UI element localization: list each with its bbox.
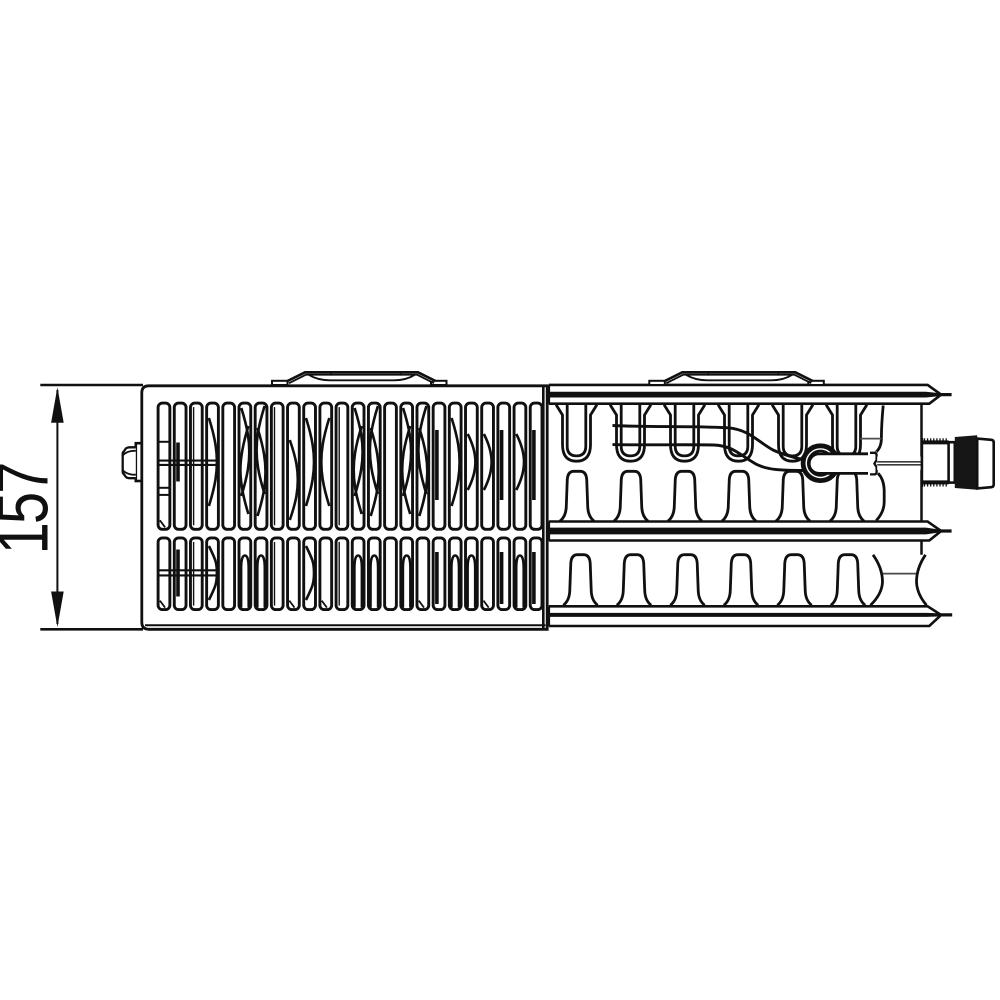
svg-text:157: 157 (0, 464, 63, 555)
